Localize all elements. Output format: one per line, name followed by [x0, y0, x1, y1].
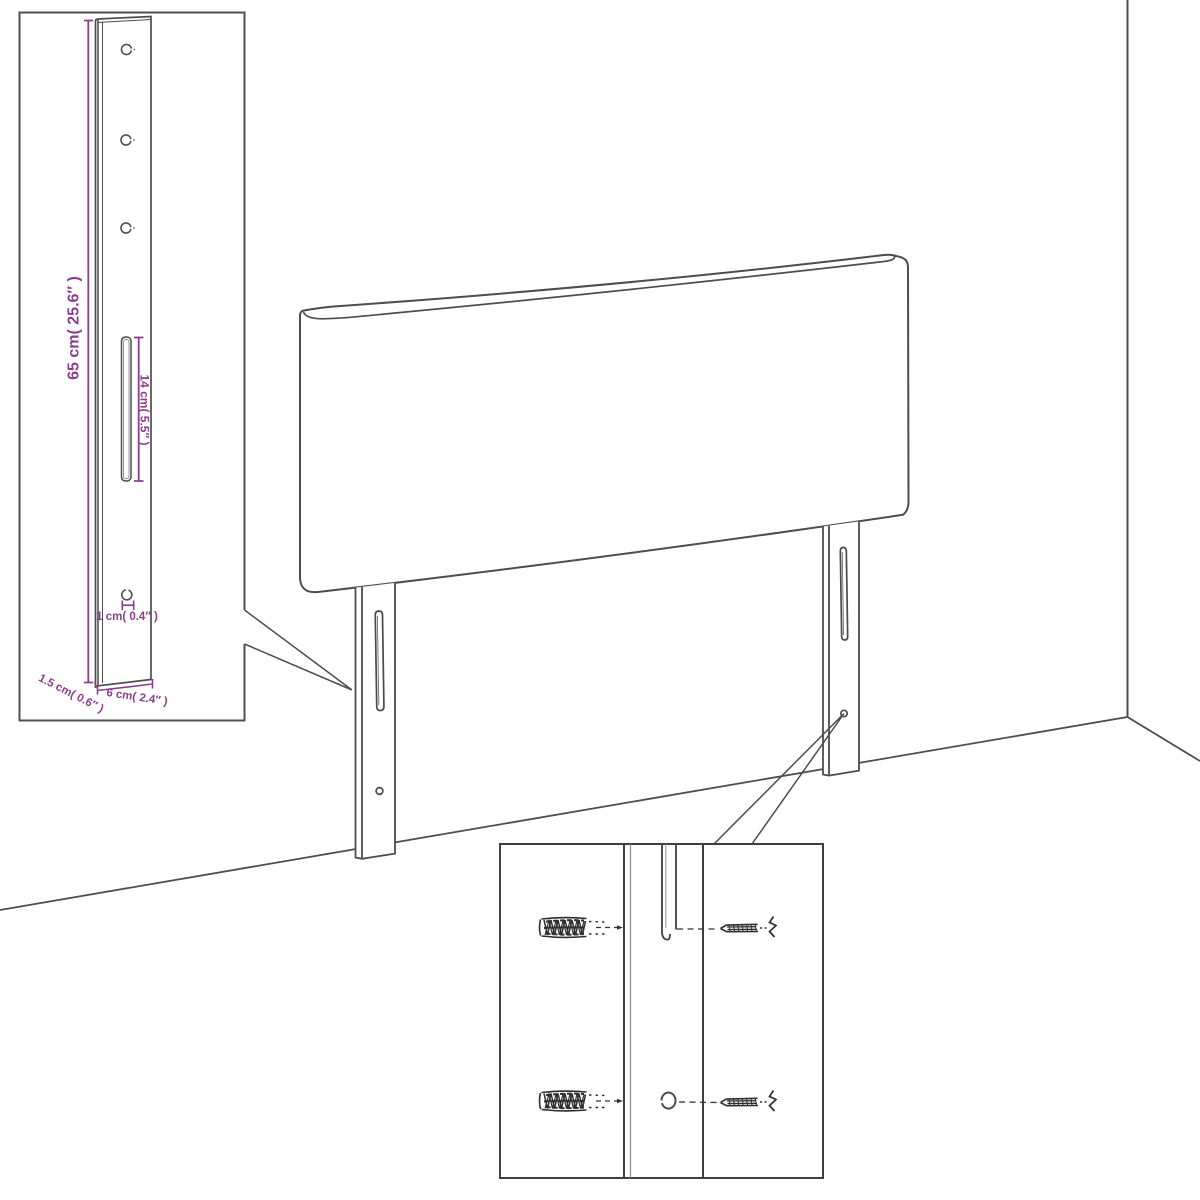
svg-text:1 cm( 0.4″ ): 1 cm( 0.4″ ) — [96, 611, 158, 623]
svg-text:14 cm( 5.5″ ): 14 cm( 5.5″ ) — [138, 374, 152, 445]
svg-text:65 cm( 25.6″ ): 65 cm( 25.6″ ) — [66, 276, 83, 380]
